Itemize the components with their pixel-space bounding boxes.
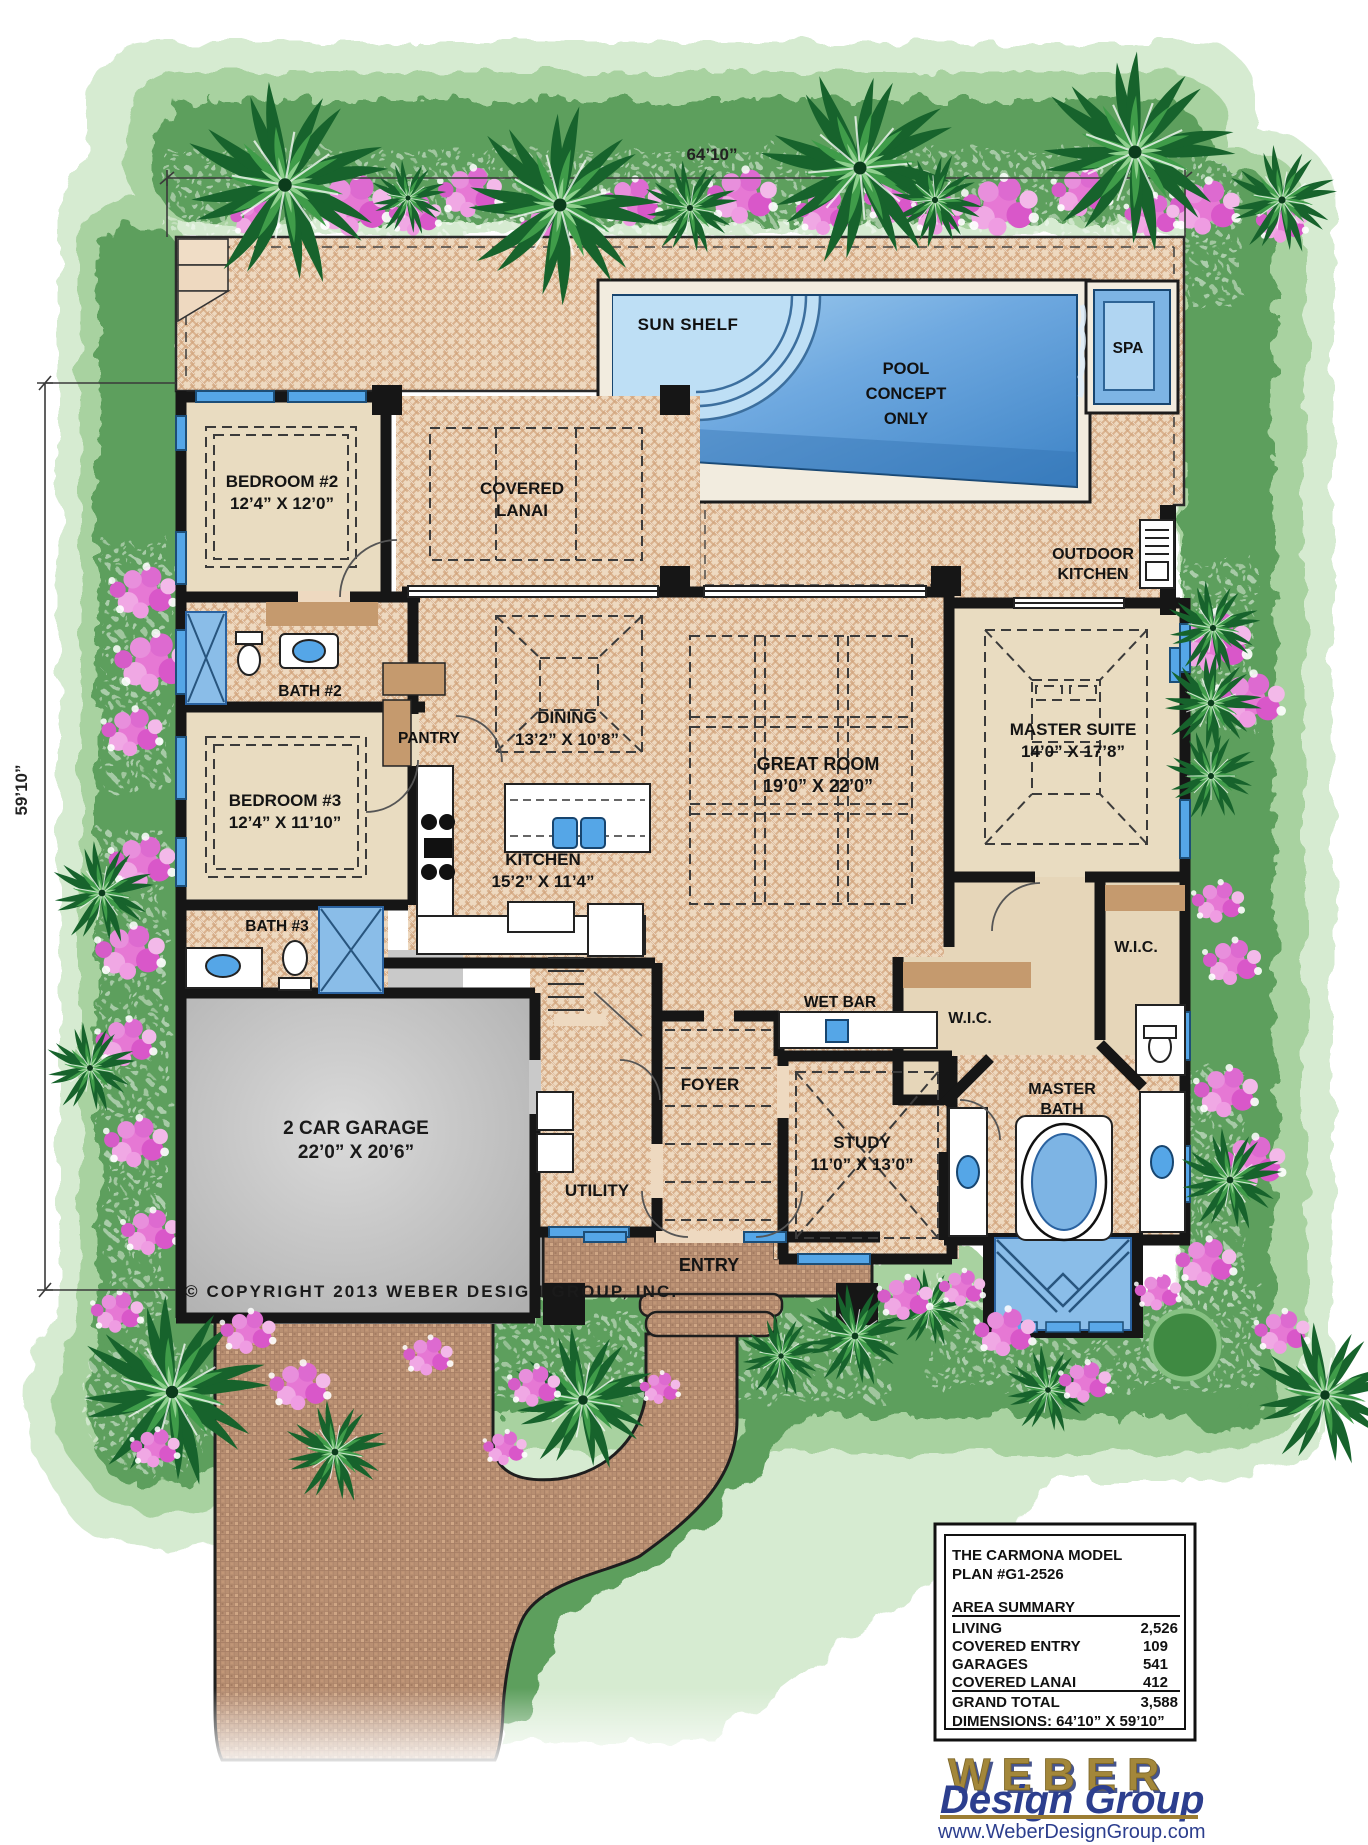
svg-text:DINING: DINING xyxy=(537,708,597,727)
svg-text:CONCEPT: CONCEPT xyxy=(866,385,947,403)
svg-text:3,588: 3,588 xyxy=(1140,1694,1178,1711)
svg-text:ENTRY: ENTRY xyxy=(679,1255,739,1275)
svg-text:22’0” X 20’6”: 22’0” X 20’6” xyxy=(298,1142,414,1163)
svg-text:KITCHEN: KITCHEN xyxy=(505,850,581,869)
svg-text:SPA: SPA xyxy=(1113,340,1144,357)
svg-text:www.WeberDesignGroup.com: www.WeberDesignGroup.com xyxy=(937,1821,1206,1843)
svg-text:LANAI: LANAI xyxy=(496,501,548,520)
svg-text:W.I.C.: W.I.C. xyxy=(1114,939,1158,956)
svg-text:MASTER SUITE: MASTER SUITE xyxy=(1010,720,1137,739)
svg-text:13’2” X 10’8”: 13’2” X 10’8” xyxy=(515,730,619,749)
svg-text:12’4” X 11’10”: 12’4” X 11’10” xyxy=(229,813,341,832)
svg-text:ONLY: ONLY xyxy=(884,410,928,428)
svg-text:W.I.C.: W.I.C. xyxy=(948,1010,992,1027)
svg-text:14’0” X 17’8”: 14’0” X 17’8” xyxy=(1021,742,1125,761)
svg-text:GRAND TOTAL: GRAND TOTAL xyxy=(952,1694,1060,1711)
svg-text:SUN SHELF: SUN SHELF xyxy=(638,315,739,334)
svg-text:64’10”: 64’10” xyxy=(686,145,737,164)
svg-text:OUTDOOR: OUTDOOR xyxy=(1052,546,1134,563)
svg-text:THE CARMONA MODEL: THE CARMONA MODEL xyxy=(952,1547,1122,1564)
svg-text:2 CAR GARAGE: 2 CAR GARAGE xyxy=(283,1118,429,1139)
svg-text:COVERED ENTRY: COVERED ENTRY xyxy=(952,1638,1081,1655)
svg-text:STUDY: STUDY xyxy=(833,1133,891,1152)
svg-text:12’4” X 12’0”: 12’4” X 12’0” xyxy=(230,494,334,513)
svg-text:GARAGES: GARAGES xyxy=(952,1656,1028,1673)
svg-text:19’0” X 22’0”: 19’0” X 22’0” xyxy=(763,776,873,796)
svg-text:541: 541 xyxy=(1143,1656,1168,1673)
svg-text:BATH #2: BATH #2 xyxy=(278,683,341,700)
svg-text:© COPYRIGHT 2013 WEBER DESIGN: © COPYRIGHT 2013 WEBER DESIGN GROUP, INC… xyxy=(185,1282,678,1301)
svg-text:DIMENSIONS: 64’10” X 59’10”: DIMENSIONS: 64’10” X 59’10” xyxy=(952,1713,1165,1730)
svg-text:2,526: 2,526 xyxy=(1140,1620,1178,1637)
svg-text:WET BAR: WET BAR xyxy=(804,994,876,1011)
svg-text:BEDROOM #3: BEDROOM #3 xyxy=(229,791,341,810)
svg-text:109: 109 xyxy=(1143,1638,1168,1655)
svg-text:LIVING: LIVING xyxy=(952,1620,1002,1637)
svg-text:PANTRY: PANTRY xyxy=(398,730,461,747)
svg-text:BATH #3: BATH #3 xyxy=(245,918,309,935)
svg-text:11’0” X 13’0”: 11’0” X 13’0” xyxy=(810,1155,913,1174)
svg-text:FOYER: FOYER xyxy=(681,1075,740,1094)
svg-text:59’10”: 59’10” xyxy=(12,764,31,815)
svg-text:BEDROOM #2: BEDROOM #2 xyxy=(226,472,338,491)
svg-text:BATH: BATH xyxy=(1040,1101,1083,1118)
svg-text:15’2” X 11’4”: 15’2” X 11’4” xyxy=(491,872,594,891)
svg-text:POOL: POOL xyxy=(883,360,930,378)
svg-text:KITCHEN: KITCHEN xyxy=(1057,566,1128,583)
svg-text:MASTER: MASTER xyxy=(1028,1081,1096,1098)
svg-text:COVERED LANAI: COVERED LANAI xyxy=(952,1674,1076,1691)
svg-text:PLAN #G1-2526: PLAN #G1-2526 xyxy=(952,1566,1064,1583)
svg-text:AREA SUMMARY: AREA SUMMARY xyxy=(952,1599,1075,1616)
svg-text:COVERED: COVERED xyxy=(480,479,564,498)
svg-text:412: 412 xyxy=(1143,1674,1168,1691)
svg-text:GREAT ROOM: GREAT ROOM xyxy=(757,754,880,774)
svg-text:UTILITY: UTILITY xyxy=(565,1181,630,1200)
